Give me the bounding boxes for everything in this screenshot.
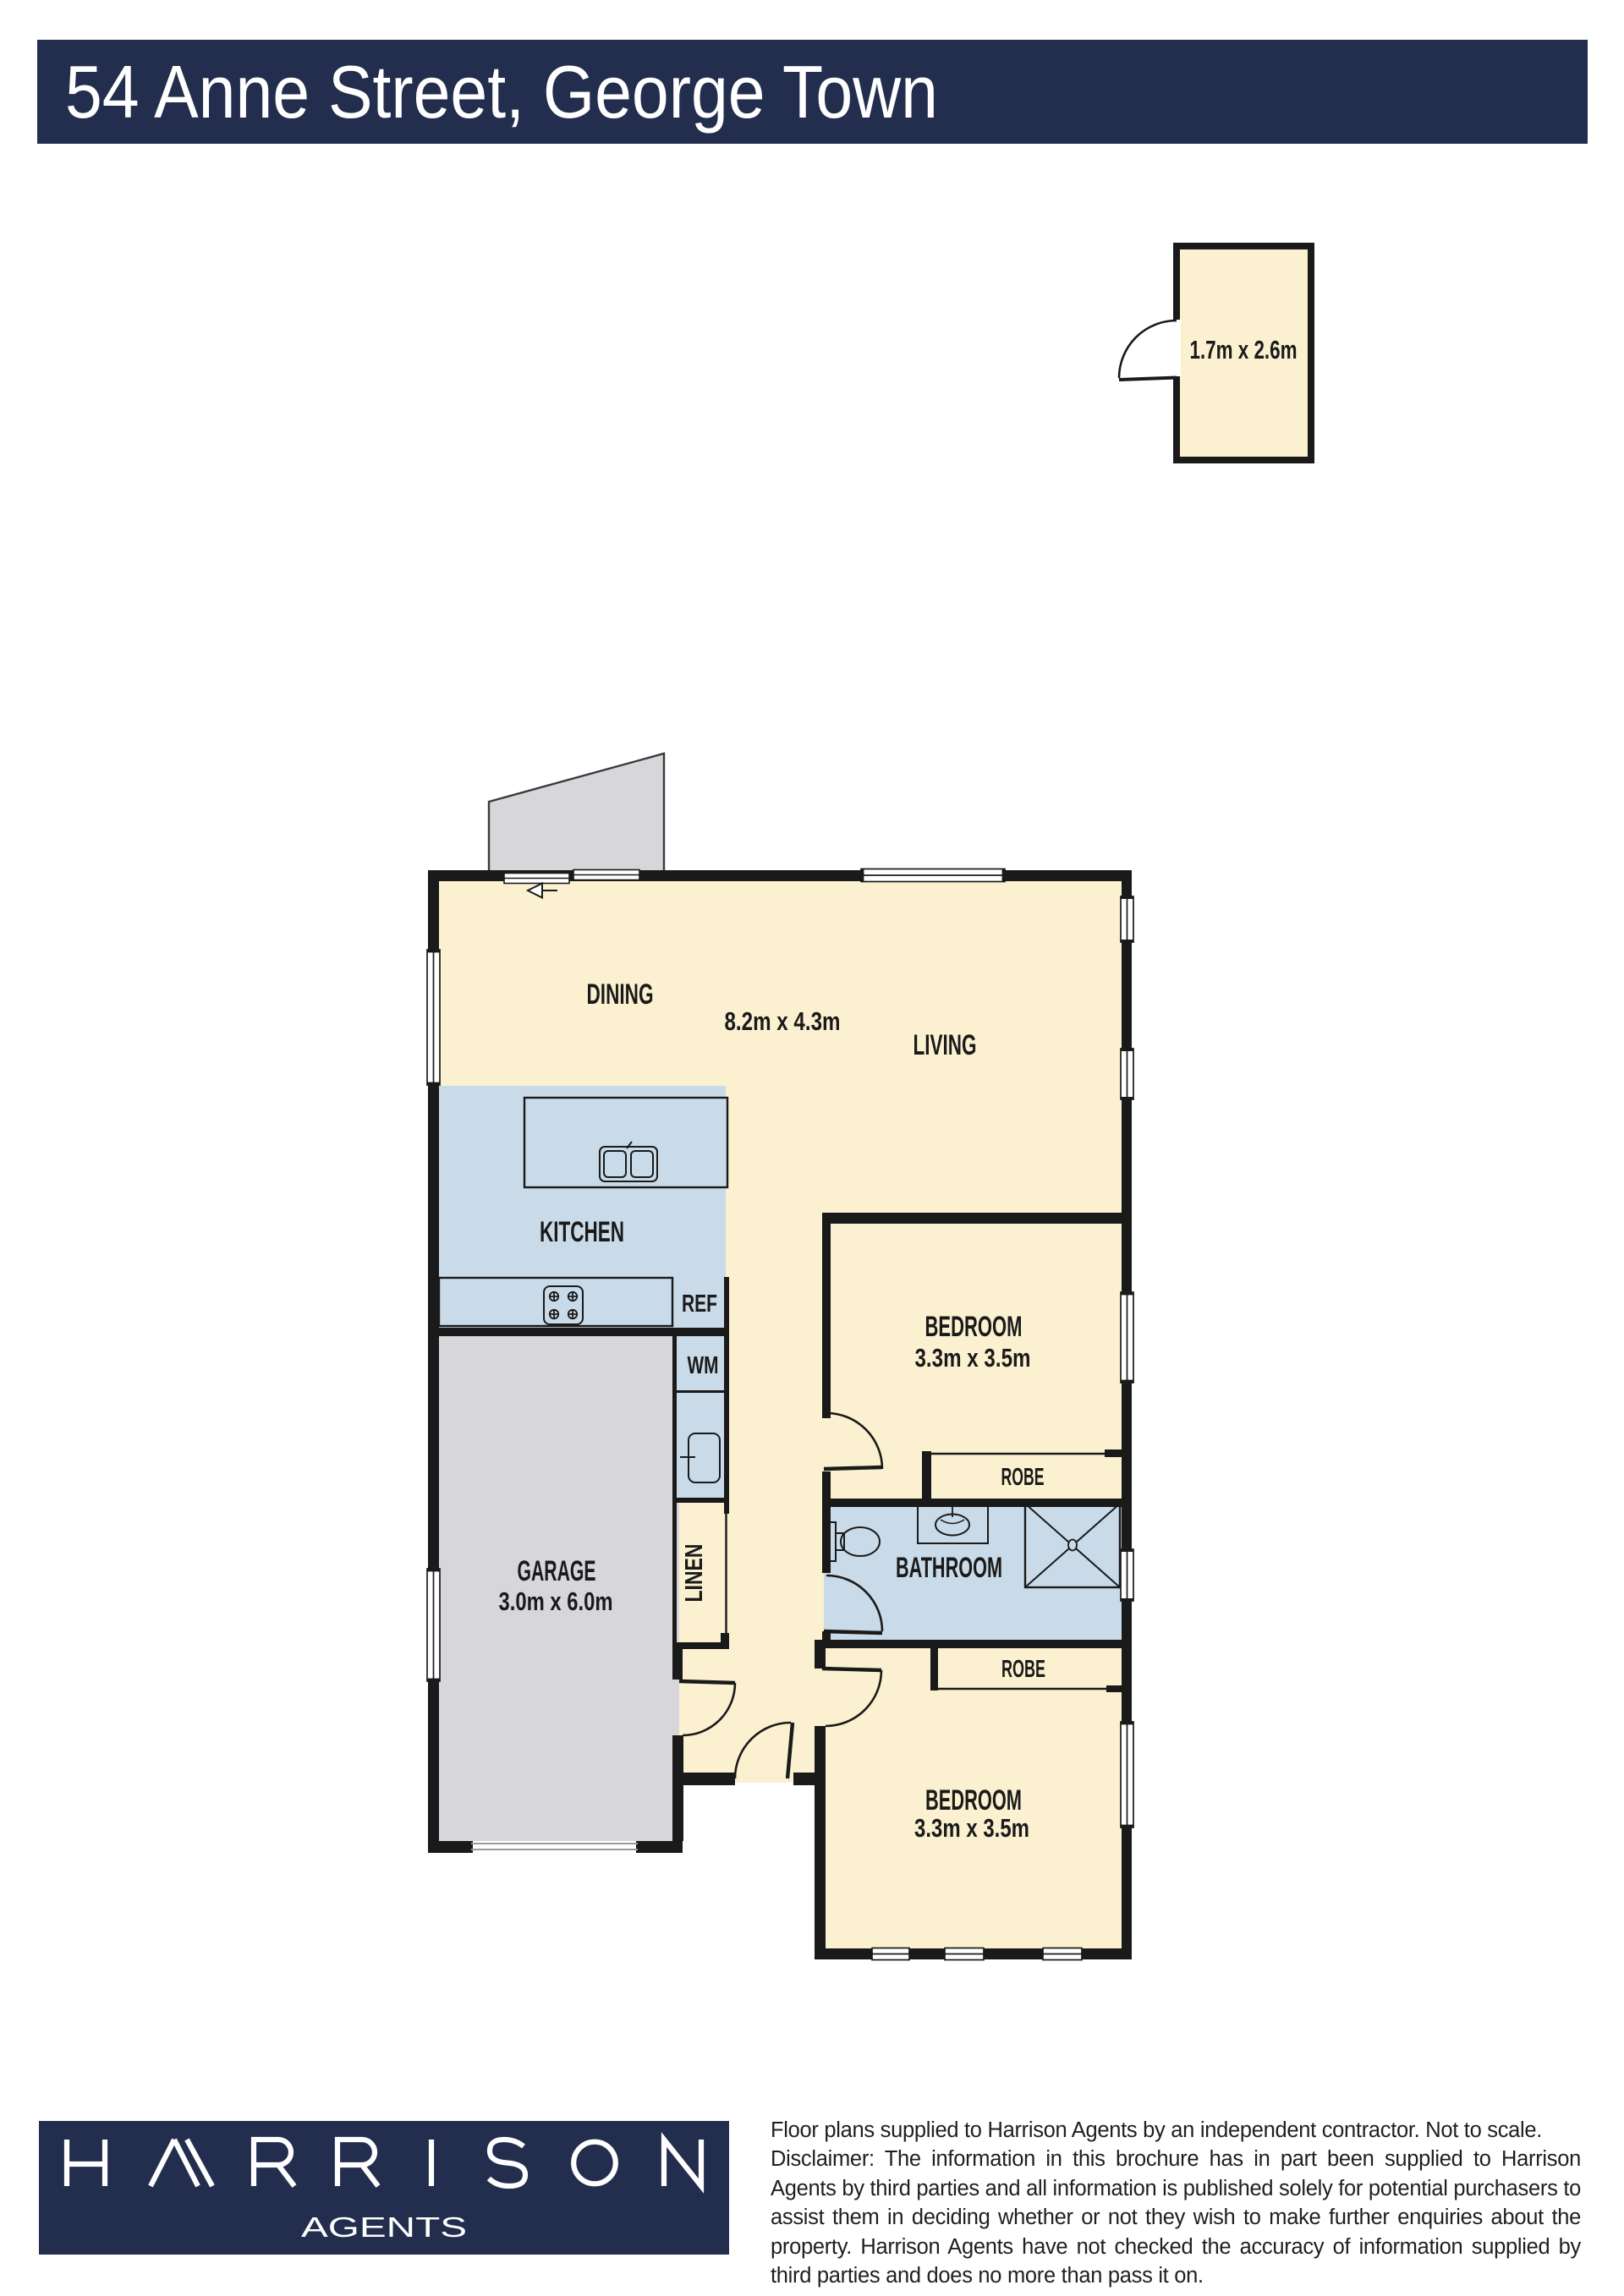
svg-text:AGENTS: AGENTS [301, 2211, 467, 2243]
svg-text:WM: WM [688, 1352, 719, 1379]
svg-text:BEDROOM: BEDROOM [925, 1784, 1022, 1817]
svg-text:1.7m x 2.6m: 1.7m x 2.6m [1190, 335, 1298, 364]
svg-text:BATHROOM: BATHROOM [896, 1552, 1002, 1584]
svg-text:3.3m x 3.5m: 3.3m x 3.5m [915, 1343, 1031, 1373]
svg-text:GARAGE: GARAGE [518, 1555, 596, 1587]
svg-text:3.3m x 3.5m: 3.3m x 3.5m [914, 1813, 1029, 1843]
svg-text:LIVING: LIVING [913, 1029, 977, 1061]
svg-text:LINEN: LINEN [681, 1544, 708, 1603]
svg-text:ROBE: ROBE [1001, 1656, 1045, 1683]
svg-text:BEDROOM: BEDROOM [925, 1311, 1023, 1343]
svg-text:3.0m x 6.0m: 3.0m x 6.0m [499, 1586, 613, 1616]
svg-text:KITCHEN: KITCHEN [540, 1216, 624, 1248]
svg-text:REF: REF [682, 1290, 717, 1318]
svg-text:DINING: DINING [587, 978, 654, 1011]
svg-text:8.2m x 4.3m: 8.2m x 4.3m [725, 1006, 841, 1036]
svg-text:ROBE: ROBE [1001, 1464, 1045, 1491]
